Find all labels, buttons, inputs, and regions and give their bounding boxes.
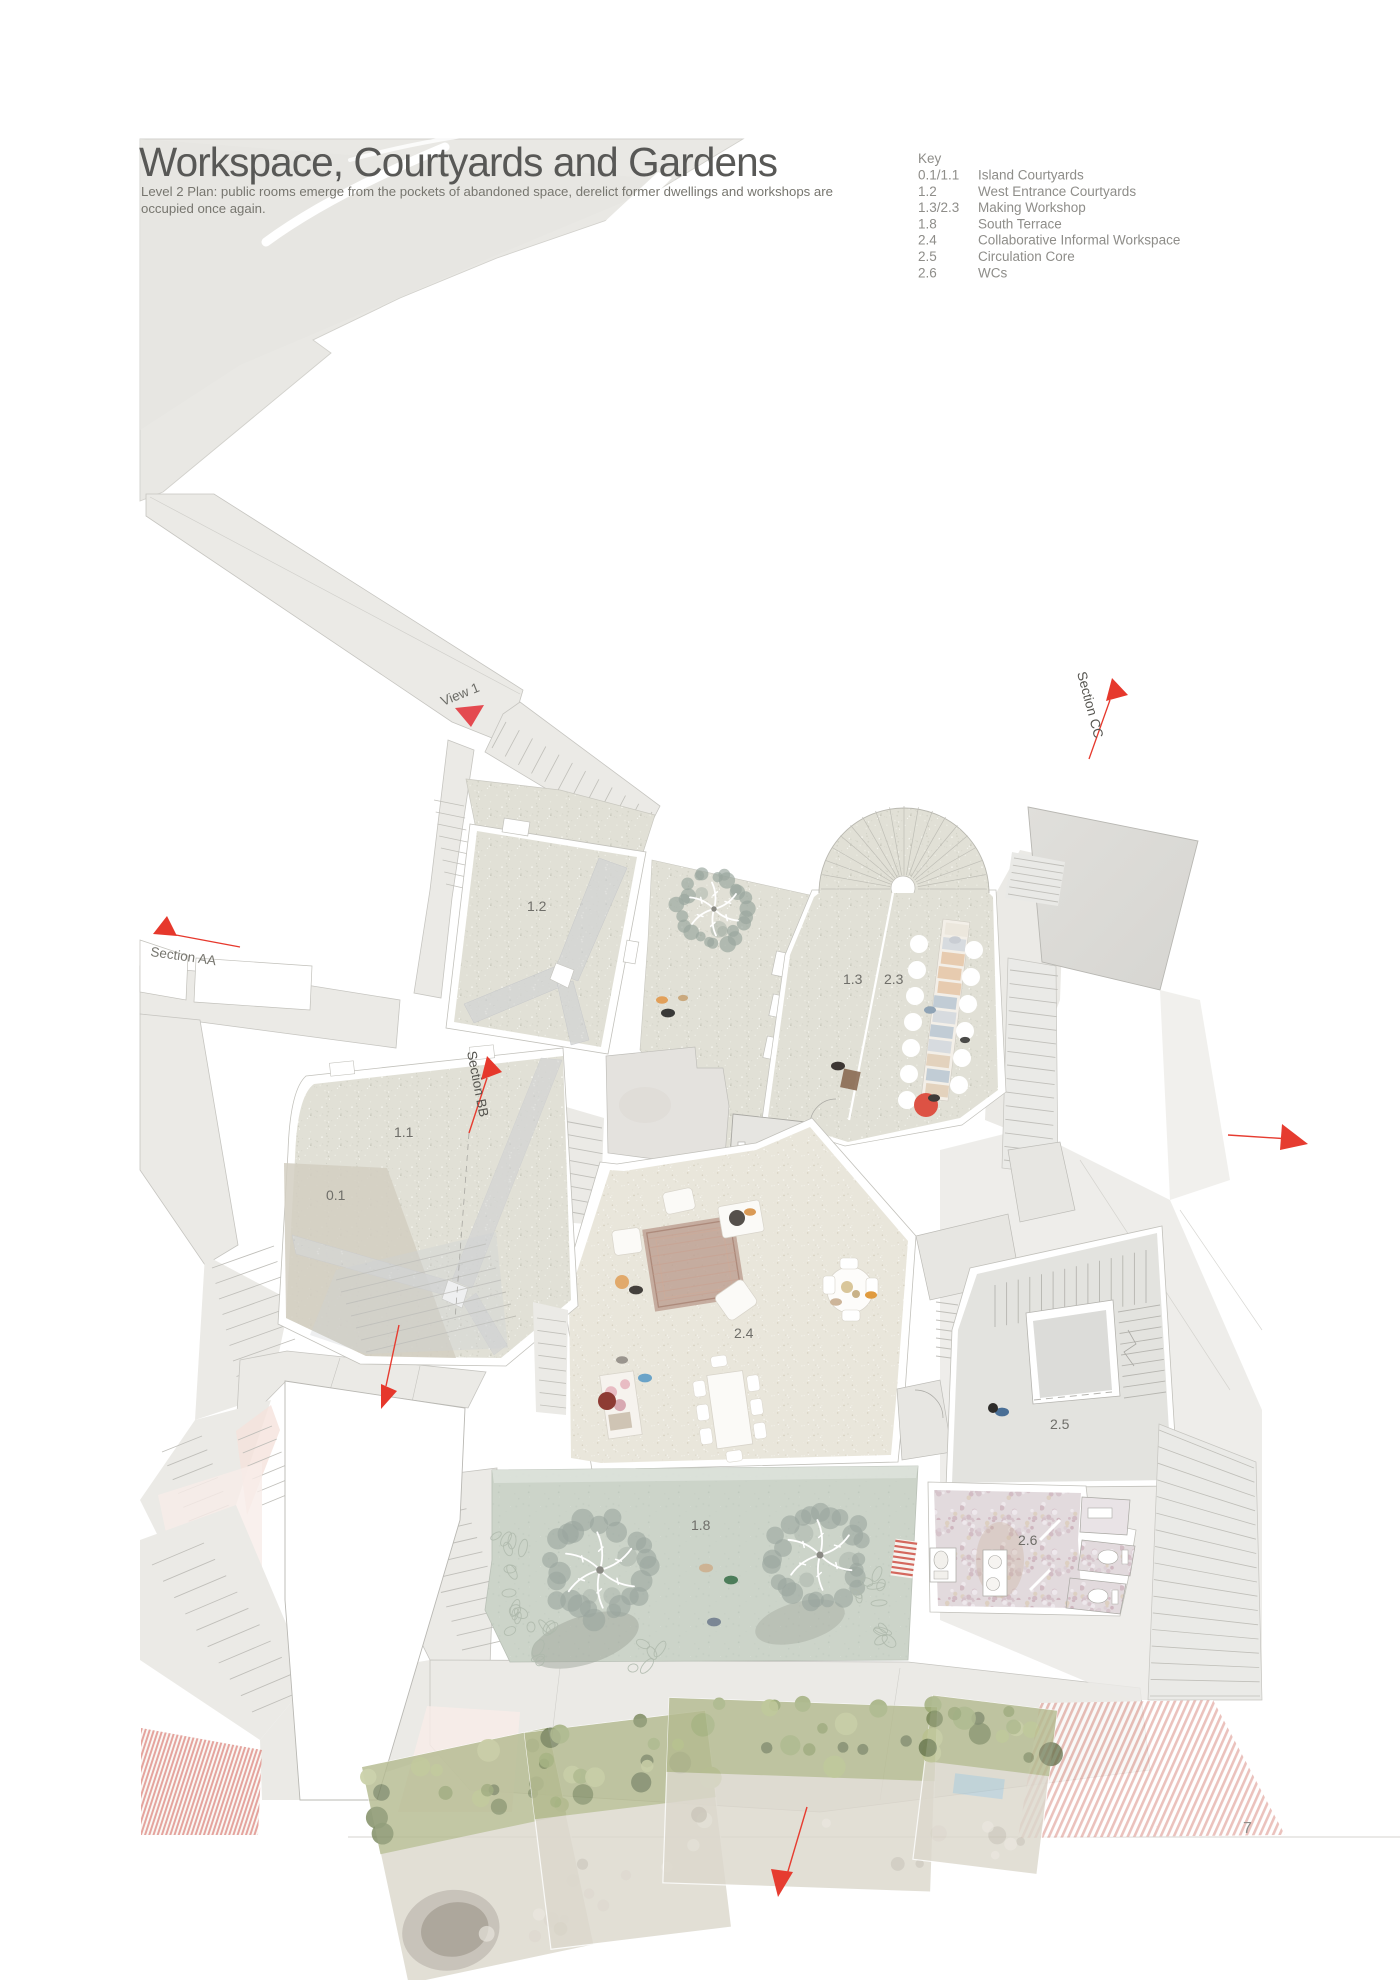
svg-text:2.5: 2.5 xyxy=(918,249,937,264)
svg-text:1.8: 1.8 xyxy=(918,216,937,231)
svg-text:Circulation Core: Circulation Core xyxy=(978,249,1075,264)
svg-text:1.3: 1.3 xyxy=(843,971,863,987)
svg-text:South Terrace: South Terrace xyxy=(978,216,1062,231)
svg-text:Workspace, Courtyards and Gard: Workspace, Courtyards and Gardens xyxy=(139,139,777,185)
svg-text:0.1: 0.1 xyxy=(326,1187,346,1203)
svg-text:1.2: 1.2 xyxy=(527,898,547,914)
svg-text:7: 7 xyxy=(1243,1820,1252,1837)
svg-text:2.4: 2.4 xyxy=(918,233,937,248)
svg-text:1.2: 1.2 xyxy=(918,184,937,199)
svg-text:1.3/2.3: 1.3/2.3 xyxy=(918,200,959,215)
svg-text:0.1/1.1: 0.1/1.1 xyxy=(918,168,959,183)
svg-text:Collaborative Informal Workspa: Collaborative Informal Workspace xyxy=(978,233,1180,248)
svg-text:occupied once again.: occupied once again. xyxy=(141,201,266,216)
svg-text:Island Courtyards: Island Courtyards xyxy=(978,168,1084,183)
svg-text:West Entrance Courtyards: West Entrance Courtyards xyxy=(978,184,1136,199)
svg-text:WCs: WCs xyxy=(978,265,1007,280)
svg-text:2.6: 2.6 xyxy=(1018,1532,1038,1548)
svg-text:2.6: 2.6 xyxy=(918,265,937,280)
svg-text:Level 2 Plan: public rooms eme: Level 2 Plan: public rooms emerge from t… xyxy=(141,184,833,199)
svg-text:1.8: 1.8 xyxy=(691,1517,711,1533)
svg-text:1.1: 1.1 xyxy=(394,1124,414,1140)
svg-text:2.3: 2.3 xyxy=(884,971,904,987)
svg-text:2.4: 2.4 xyxy=(734,1325,754,1341)
svg-text:2.5: 2.5 xyxy=(1050,1416,1070,1432)
svg-text:Key: Key xyxy=(918,151,942,166)
svg-text:Making Workshop: Making Workshop xyxy=(978,200,1086,215)
